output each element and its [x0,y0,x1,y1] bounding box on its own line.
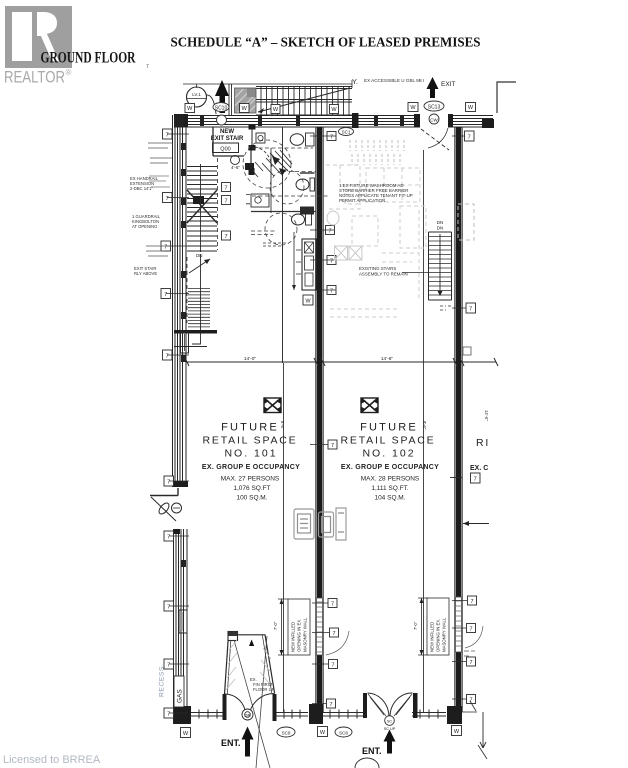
svg-text:14'-0": 14'-0" [244,356,257,362]
svg-text:SC10: SC10 [215,106,228,112]
svg-text:7: 7 [224,186,227,192]
svg-text:7: 7 [331,663,334,669]
svg-text:RECESS: RECESS [159,666,166,697]
svg-text:DN: DN [437,220,444,225]
svg-text:RLY ABOVE: RLY ABOVE [134,271,157,276]
svg-text:7: 7 [332,631,335,637]
svg-text:W: W [305,299,311,305]
svg-text:NO. 102: NO. 102 [362,448,415,460]
svg-text:14'-6": 14'-6" [484,410,489,421]
svg-text:DR: DR [244,713,250,718]
svg-text:EX. C: EX. C [470,465,488,472]
svg-text:EX. GROUP E OCCUPANCY: EX. GROUP E OCCUPANCY [341,464,439,471]
svg-text:MAX. 27 PERSONS: MAX. 27 PERSONS [221,476,280,483]
svg-text:7: 7 [167,712,170,718]
svg-text:SC: SC [387,720,393,724]
svg-text:W: W [183,731,189,737]
svg-text:®: ® [66,68,72,77]
svg-text:REALTOR: REALTOR [4,69,65,87]
svg-text:NEW: NEW [220,129,234,135]
svg-text:ENT.: ENT. [221,738,241,748]
svg-text:MASONRY WALL: MASONRY WALL [442,617,447,652]
svg-text:7: 7 [331,602,334,608]
svg-text:RETAIL SPACE: RETAIL SPACE [341,435,436,447]
svg-text:MASONRY WALL: MASONRY WALL [303,617,308,652]
svg-text:OPENING IN EX.: OPENING IN EX. [297,619,302,652]
svg-text:7: 7 [474,477,477,483]
svg-text:RETAIL SPACE: RETAIL SPACE [203,435,298,447]
svg-text:7: 7 [330,135,333,141]
svg-text:Q00: Q00 [220,147,230,153]
svg-text:7: 7 [329,702,332,708]
svg-text:7: 7 [166,354,169,360]
svg-text:SC1: SC1 [342,130,351,135]
svg-text:RI: RI [476,437,490,449]
svg-text:SC13: SC13 [428,105,441,111]
svg-text:Y.: Y. [352,77,358,86]
svg-text:7: 7 [167,605,170,611]
svg-text:100 SQ.M.: 100 SQ.M. [236,495,267,502]
svg-text:7: 7 [330,259,333,265]
svg-text:SCHEDULE “A” – SKETCH OF LEASE: SCHEDULE “A” – SKETCH OF LEASED PREMISES [171,35,481,50]
svg-text:1,076 SQ.FT: 1,076 SQ.FT [233,485,270,492]
svg-text:7: 7 [146,64,149,70]
svg-text:8'-6": 8'-6" [280,421,285,430]
svg-text:AT OPENING: AT OPENING [132,224,157,229]
svg-text:EXIT: EXIT [441,81,455,88]
svg-text:W: W [187,106,193,112]
svg-text:8'-6": 8'-6" [422,421,427,430]
svg-text:EXIT STAIR: EXIT STAIR [211,136,244,142]
svg-text:GAS: GAS [177,689,184,703]
svg-text:Licensed to BRREA: Licensed to BRREA [3,754,101,766]
svg-text:7: 7 [164,292,167,298]
svg-text:W: W [468,105,474,111]
svg-text:EX ACCESSIBLE U GBL 9B I: EX ACCESSIBLE U GBL 9B I [364,78,424,83]
svg-text:7: 7 [468,135,471,141]
svg-text:NEW INFILLED: NEW INFILLED [291,622,296,652]
svg-text:7: 7 [470,599,473,605]
svg-text:LV.1: LV.1 [192,92,201,97]
svg-text:NEW INFILLED: NEW INFILLED [430,622,435,652]
svg-text:EXISTING STAIRS: EXISTING STAIRS [359,266,396,271]
svg-text:ENT.: ENT. [362,746,382,756]
svg-text:ASSEMBLY TO REMAIN: ASSEMBLY TO REMAIN [359,272,408,277]
svg-text:7: 7 [167,663,170,669]
svg-text:7: 7 [331,443,334,449]
svg-text:7: 7 [167,535,170,541]
svg-text:1,111 SQ.FT.: 1,111 SQ.FT. [371,485,409,492]
svg-text:W: W [320,730,326,736]
svg-text:MAX. 28 PERSONS: MAX. 28 PERSONS [361,476,420,483]
svg-text:2-DBC 14'1": 2-DBC 14'1" [130,186,154,191]
svg-text:7: 7 [328,229,331,235]
svg-text:W: W [410,105,416,111]
svg-text:7: 7 [224,199,227,205]
svg-text:EX. GROUP E OCCUPANCY: EX. GROUP E OCCUPANCY [202,464,300,471]
svg-text:W: W [331,107,337,113]
svg-text:CW: CW [430,118,438,123]
svg-text:DN: DN [196,253,203,258]
svg-text:FUTURE: FUTURE [360,422,418,434]
svg-text:SC8: SC8 [339,730,348,735]
svg-text:PERMIT APPLICATION: PERMIT APPLICATION [339,198,385,203]
svg-text:W: W [454,729,460,735]
svg-text:W: W [242,106,248,112]
svg-text:104 SQ.M.: 104 SQ.M. [374,495,405,502]
svg-text:4'-6": 4'-6" [231,165,240,170]
svg-text:GROUND FLOOR: GROUND FLOOR [41,50,137,67]
svg-text:7: 7 [330,289,333,295]
svg-text:7'-0": 7'-0" [273,621,278,630]
svg-text:7: 7 [469,660,472,666]
svg-text:DN: DN [437,226,444,231]
svg-text:7: 7 [469,627,472,633]
svg-text:OPENING IN EX.: OPENING IN EX. [436,619,441,652]
svg-text:NO. 101: NO. 101 [224,448,277,460]
svg-text:FUTURE: FUTURE [221,422,279,434]
svg-text:14'-6": 14'-6" [381,356,394,362]
svg-text:7: 7 [469,307,472,313]
svg-text:7: 7 [164,245,167,251]
svg-text:7: 7 [166,196,169,202]
svg-text:W: W [273,107,279,113]
svg-text:7'-0": 7'-0" [413,621,418,630]
svg-text:SC9: SC9 [282,730,291,735]
svg-text:7: 7 [224,234,227,240]
svg-text:FLOOR UP: FLOOR UP [253,687,275,692]
svg-text:7: 7 [166,133,169,139]
svg-text:7: 7 [167,480,170,486]
